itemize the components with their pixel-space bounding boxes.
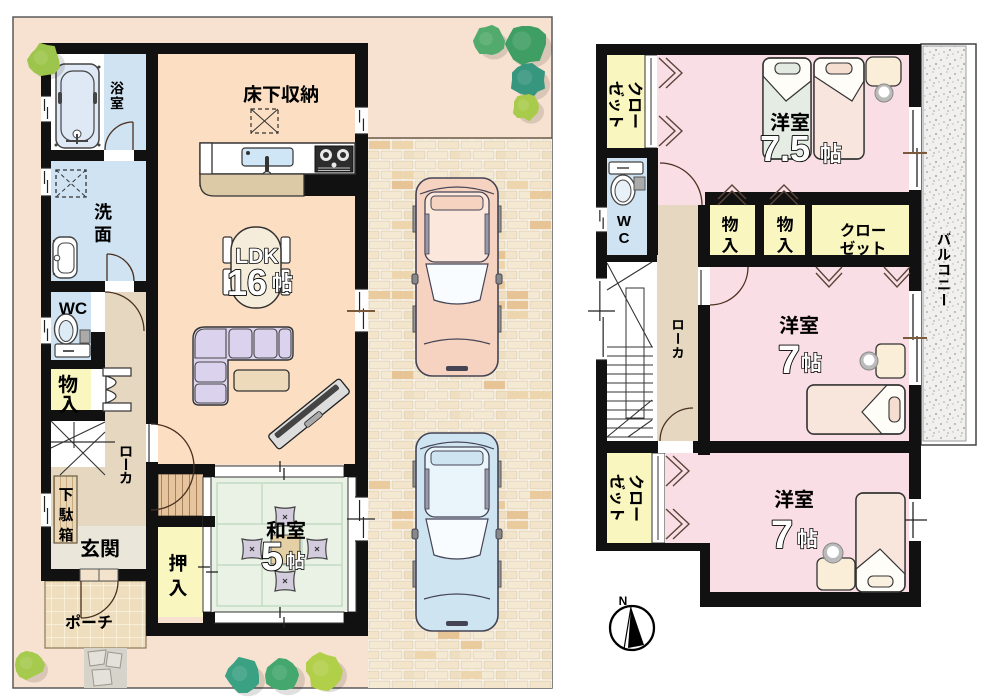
svg-text:N: N [619, 594, 628, 608]
svg-text:7: 7 [778, 338, 800, 382]
svg-text:5: 5 [261, 535, 283, 579]
svg-text:WC: WC [59, 299, 87, 318]
svg-text:7: 7 [771, 513, 793, 557]
svg-text:16: 16 [227, 262, 267, 303]
svg-text:C: C [619, 230, 630, 247]
svg-text:7.5: 7.5 [760, 128, 810, 169]
svg-text:W: W [617, 213, 632, 230]
